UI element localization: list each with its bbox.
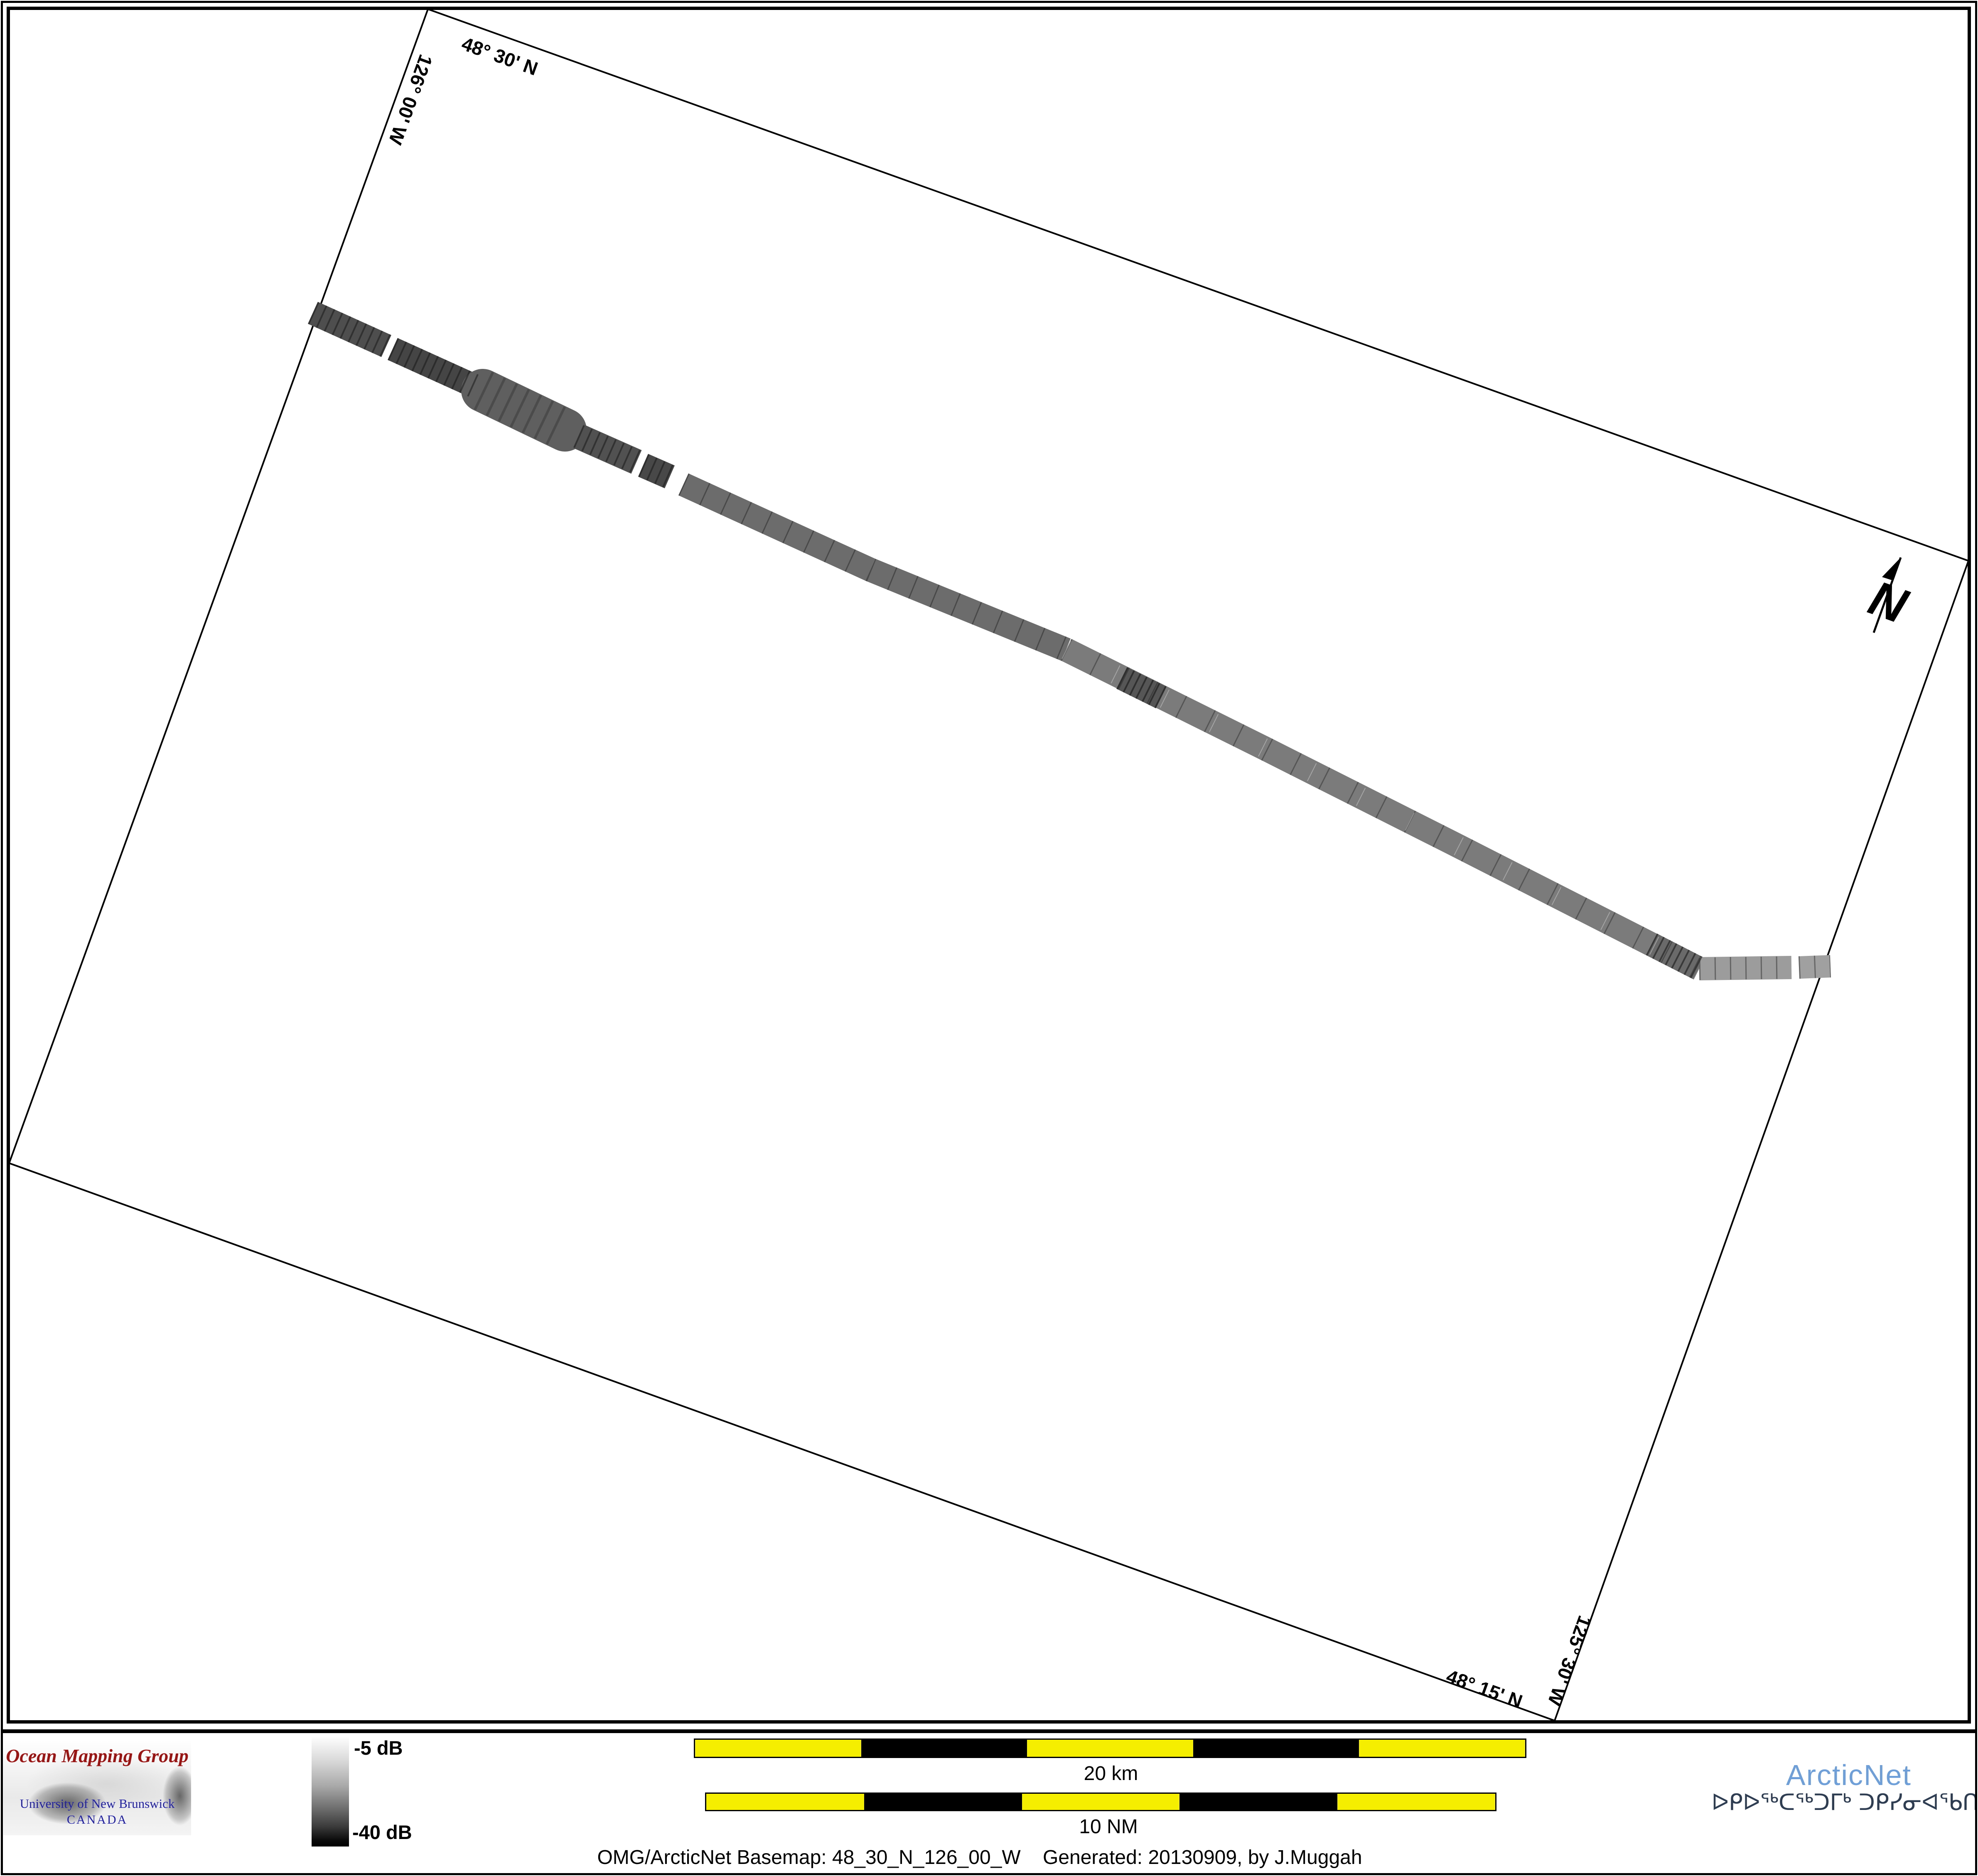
north-arrow-label: N (1862, 570, 1915, 634)
basemap-caption: OMG/ArcticNet Basemap: 48_30_N_126_00_W … (597, 1846, 1362, 1869)
map-frame (8, 8, 1969, 1722)
basemap-page: 48° 30' N 126° 00' W 125° 30' W 48° 15' … (0, 0, 1978, 1876)
omg-logo-university: University of New Brunswick (3, 1796, 191, 1811)
scalebar-segment (706, 1794, 864, 1810)
scalebar-segment (695, 1740, 861, 1757)
scalebar-segment (1337, 1794, 1495, 1810)
backscatter-colorbar (312, 1737, 349, 1847)
arcticnet-syllabics: ᐅᑭᐅᖅᑕᖅᑐᒥᒃ ᑐᑭᓯᓂᐊᖃᑎᒌᑦ (1711, 1789, 1978, 1815)
scalebar-kilometres (694, 1738, 1526, 1758)
scalebar-segment (1179, 1794, 1337, 1810)
label-left-longitude: 126° 00' W (384, 52, 437, 148)
arcticnet-logo: ArcticNet (1786, 1758, 1912, 1792)
scalebar-segment (1359, 1740, 1525, 1757)
label-bottom-latitude: 48° 15' N (1444, 1665, 1526, 1712)
scalebar-segment (864, 1794, 1022, 1810)
footer-separator (3, 1729, 1975, 1733)
colorbar-max-label: -5 dB (354, 1736, 403, 1759)
label-top-latitude: 48° 30' N (459, 32, 541, 79)
scalebar-segment (1193, 1740, 1359, 1757)
scalebar-nm-label: 10 NM (1079, 1815, 1138, 1838)
scalebar-nautical-miles (705, 1793, 1496, 1811)
graticule-box (9, 9, 1968, 1721)
omg-logo-title: Ocean Mapping Group (3, 1745, 191, 1767)
sonar-swath-track (313, 313, 1831, 969)
colorbar-min-label: -40 dB (352, 1821, 412, 1844)
omg-logo: Ocean Mapping Group University of New Br… (3, 1741, 191, 1835)
scalebar-segment (1027, 1740, 1193, 1757)
scalebar-km-label: 20 km (1084, 1762, 1138, 1785)
scalebar-segment (1022, 1794, 1180, 1810)
label-right-longitude: 125° 30' W (1543, 1613, 1596, 1709)
north-arrow-icon: N (1862, 557, 1915, 634)
scalebar-segment (861, 1740, 1027, 1757)
omg-logo-country: CANADA (3, 1813, 191, 1827)
map-canvas: 48° 30' N 126° 00' W 125° 30' W 48° 15' … (0, 0, 1978, 1876)
